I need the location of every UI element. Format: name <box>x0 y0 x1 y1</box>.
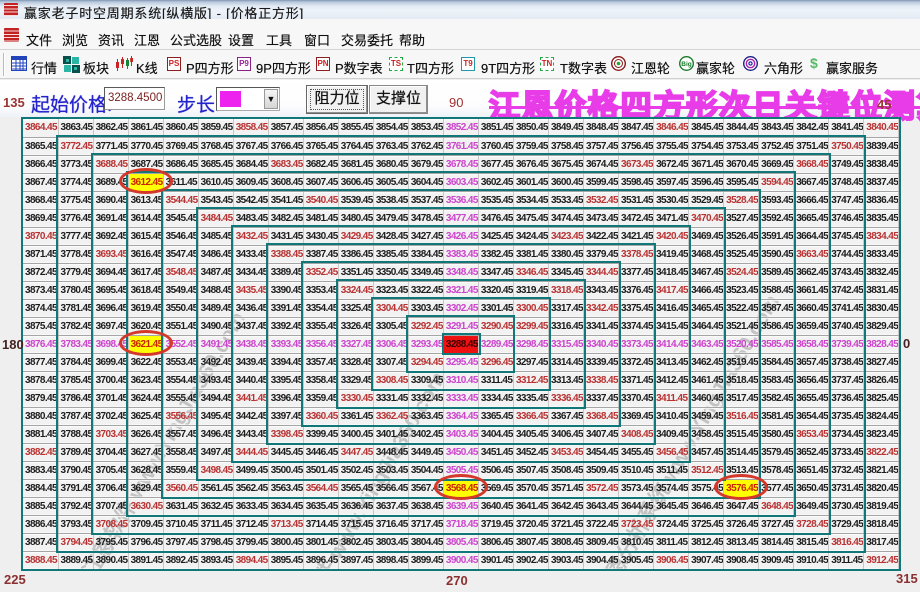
svg-text:Big: Big <box>681 61 692 68</box>
